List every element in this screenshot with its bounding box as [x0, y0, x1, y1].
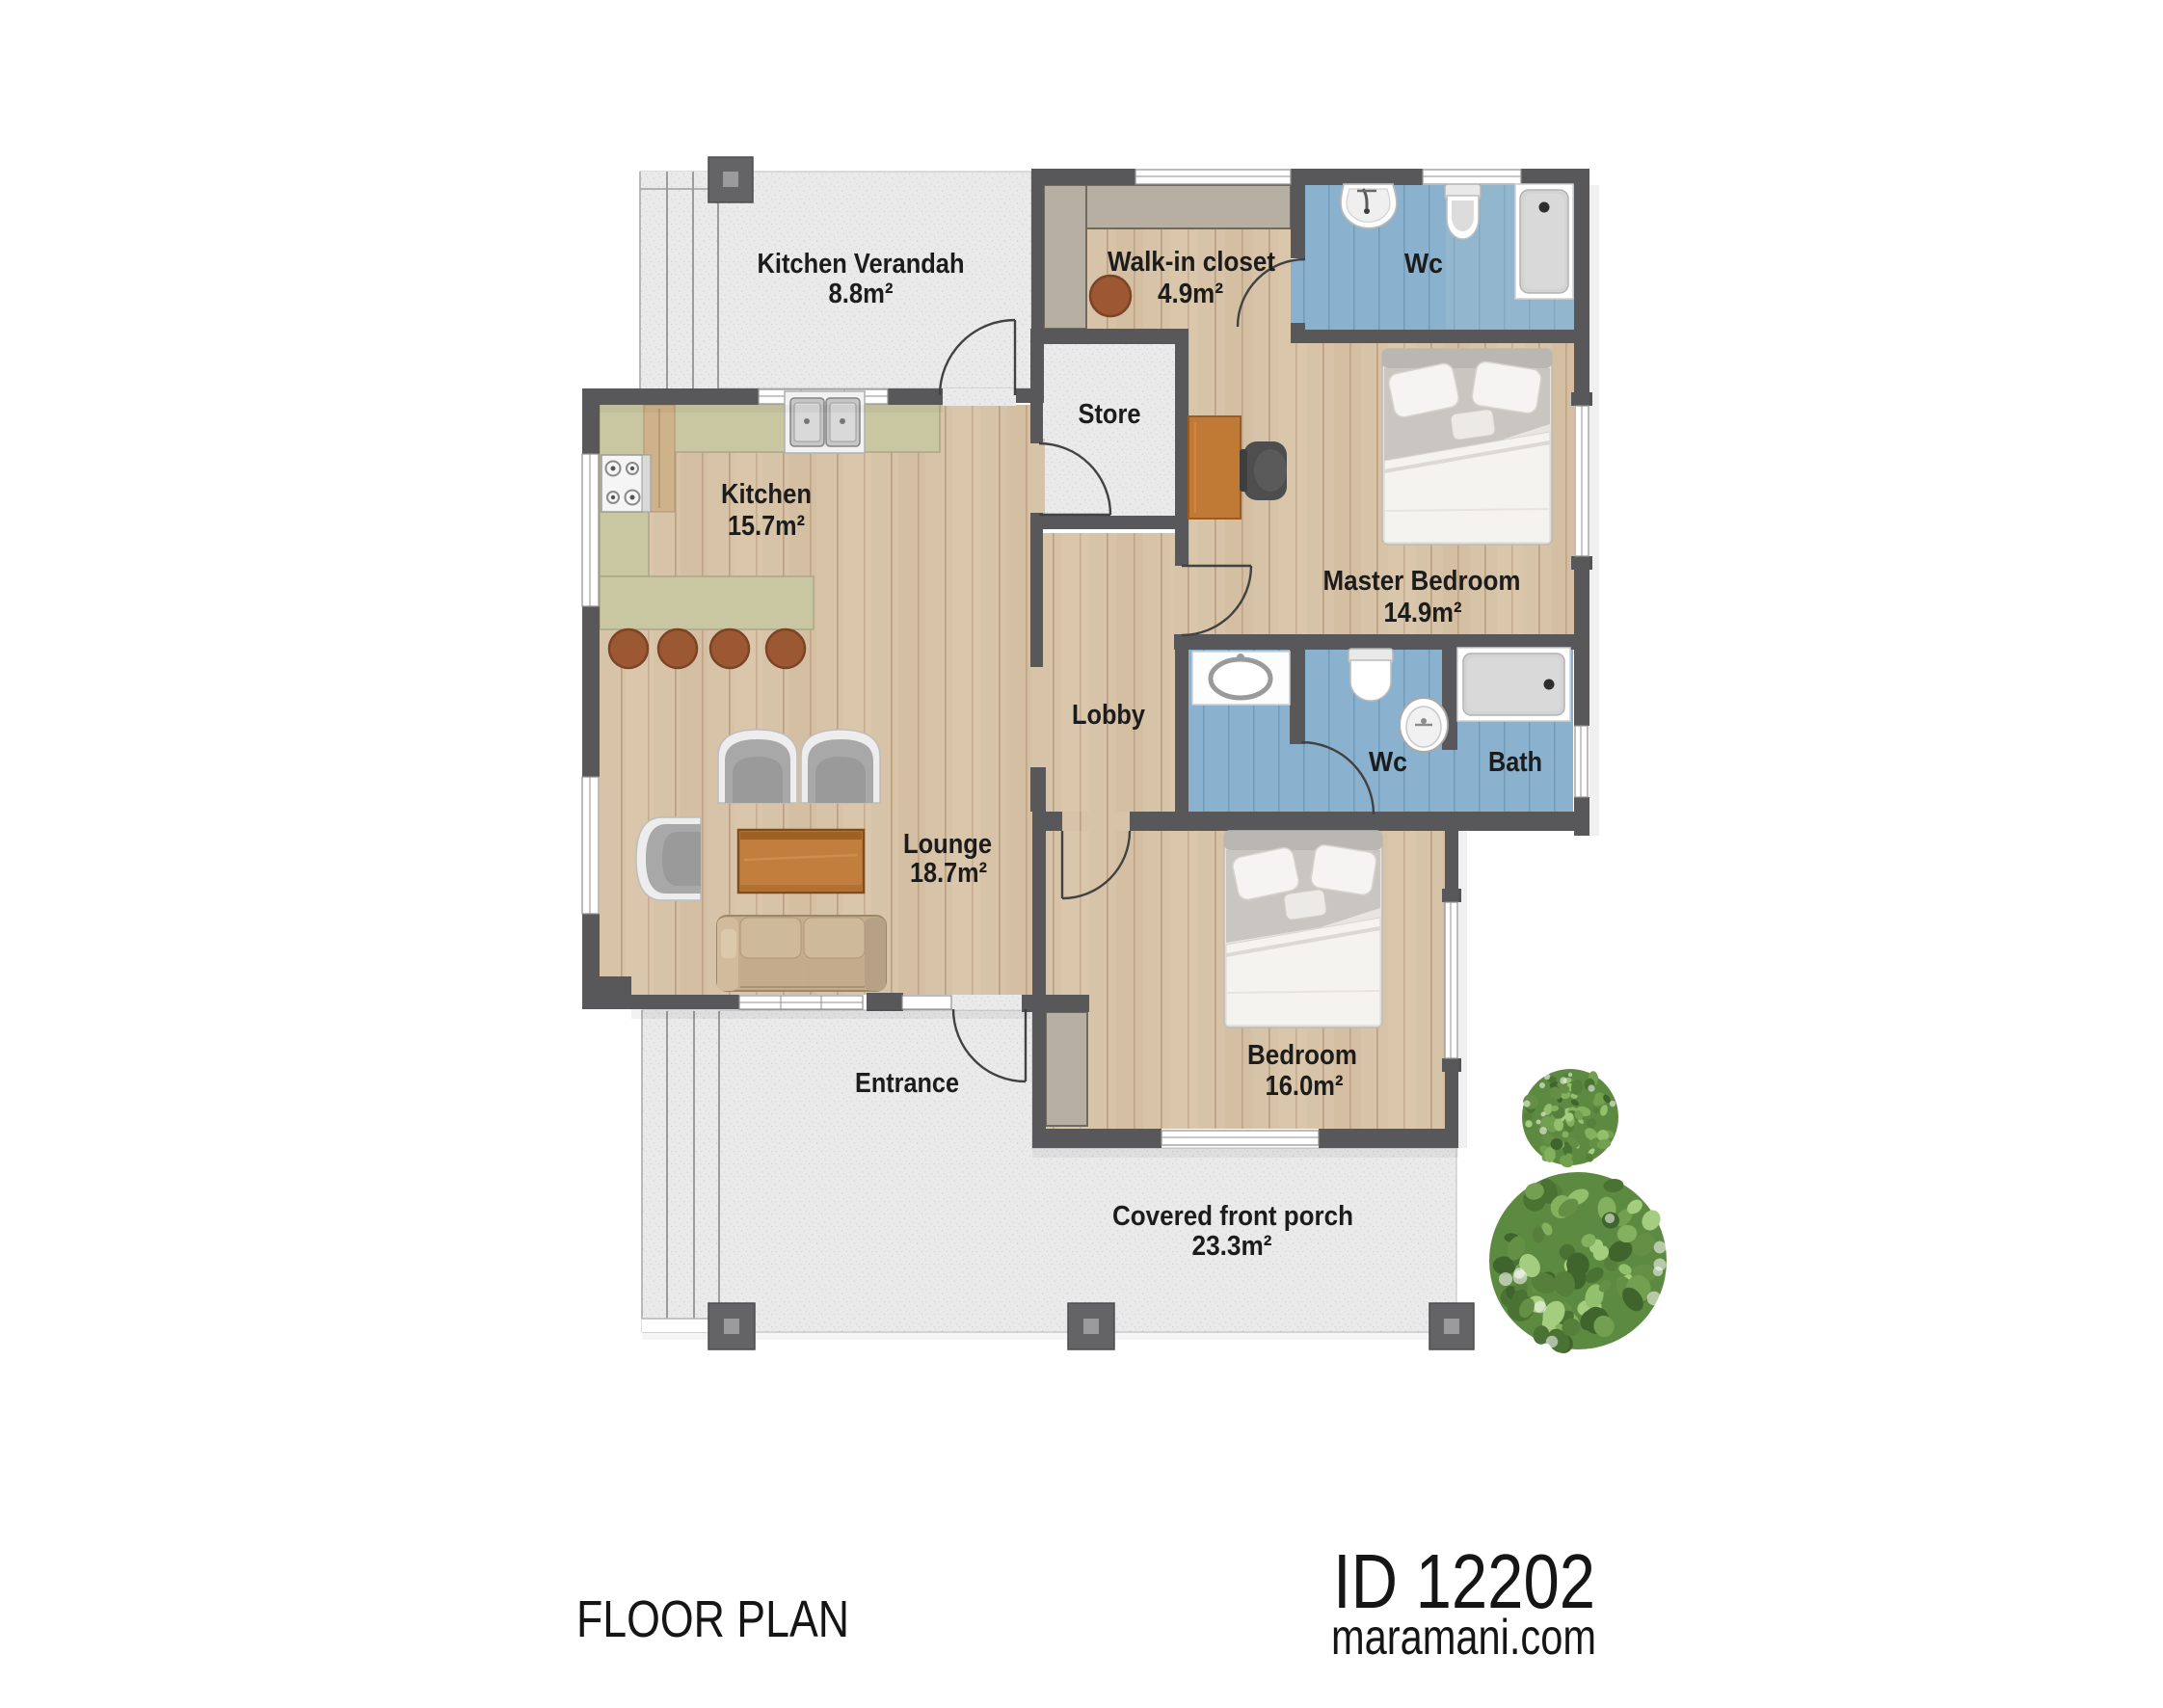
- svg-text:Kitchen Verandah: Kitchen Verandah: [758, 249, 965, 280]
- svg-text:14.9m²: 14.9m²: [1384, 598, 1462, 628]
- svg-text:Wc: Wc: [1404, 249, 1443, 280]
- svg-text:18.7m²: 18.7m²: [910, 858, 987, 889]
- svg-text:FLOOR PLAN: FLOOR PLAN: [576, 1590, 849, 1648]
- svg-text:maramani.com: maramani.com: [1331, 1610, 1596, 1666]
- svg-text:15.7m²: 15.7m²: [728, 511, 805, 542]
- svg-text:23.3m²: 23.3m²: [1192, 1231, 1272, 1262]
- svg-text:Lounge: Lounge: [903, 829, 992, 860]
- svg-text:Store: Store: [1079, 399, 1141, 430]
- svg-text:Lobby: Lobby: [1072, 700, 1145, 731]
- svg-text:Covered front porch: Covered front porch: [1112, 1201, 1353, 1232]
- svg-text:Wc: Wc: [1369, 747, 1407, 778]
- svg-text:Walk-in closet: Walk-in closet: [1108, 247, 1275, 278]
- svg-text:8.8m²: 8.8m²: [829, 279, 894, 309]
- svg-text:Master Bedroom: Master Bedroom: [1323, 566, 1521, 597]
- svg-text:4.9m²: 4.9m²: [1158, 279, 1223, 309]
- svg-text:Bedroom: Bedroom: [1247, 1040, 1357, 1071]
- svg-text:Bath: Bath: [1488, 747, 1542, 778]
- svg-text:Entrance: Entrance: [855, 1068, 959, 1099]
- svg-text:Kitchen: Kitchen: [721, 479, 812, 510]
- svg-text:16.0m²: 16.0m²: [1266, 1071, 1344, 1102]
